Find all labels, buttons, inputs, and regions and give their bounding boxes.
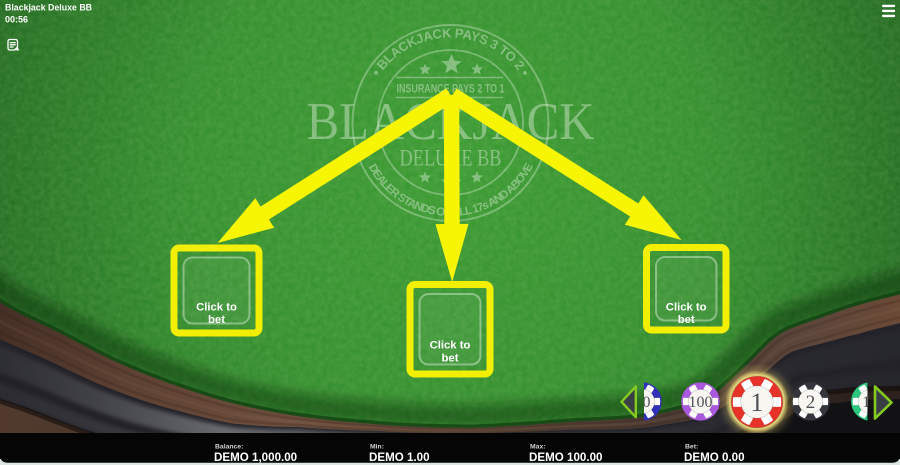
- svg-text:100: 100: [689, 394, 713, 411]
- svg-text:DEMO 100.00: DEMO 100.00: [529, 451, 602, 464]
- svg-text:Min:: Min:: [370, 444, 384, 451]
- svg-text:2: 2: [806, 392, 816, 413]
- svg-text:Blackjack Deluxe BB: Blackjack Deluxe BB: [5, 3, 92, 13]
- svg-text:DEMO 1.00: DEMO 1.00: [369, 451, 430, 464]
- svg-text:00:56: 00:56: [5, 15, 28, 25]
- svg-text:Click to: Click to: [666, 302, 707, 314]
- svg-text:1: 1: [751, 388, 764, 417]
- svg-text:DEMO 0.00: DEMO 0.00: [684, 451, 745, 464]
- svg-text:DEMO 1,000.00: DEMO 1,000.00: [214, 451, 297, 464]
- svg-text:bet: bet: [678, 314, 695, 326]
- svg-text:Max:: Max:: [530, 444, 546, 451]
- svg-text:Click to: Click to: [430, 340, 471, 352]
- svg-text:Balance:: Balance:: [215, 444, 243, 451]
- svg-text:Click to: Click to: [196, 302, 237, 314]
- svg-text:bet: bet: [208, 314, 225, 326]
- svg-text:bet: bet: [442, 352, 459, 364]
- svg-text:Bet:: Bet:: [685, 444, 698, 451]
